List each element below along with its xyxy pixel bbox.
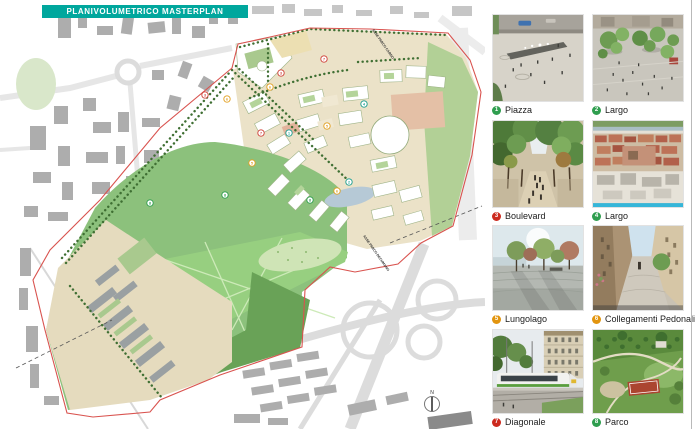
legend-label-8: Parco bbox=[605, 417, 629, 427]
masterplan-board: ASSE PARCO CARDO ASSE PARCO DECUMANO 367… bbox=[0, 0, 700, 429]
map-marker: 3 bbox=[278, 70, 284, 76]
legend-card-boulevard: 3 Boulevard bbox=[492, 120, 584, 221]
map-marker: 8 bbox=[222, 192, 228, 198]
svg-text:5: 5 bbox=[251, 161, 253, 165]
photo-diagonale bbox=[492, 329, 584, 414]
legend-card-lungolago: 5 Lungolago bbox=[492, 225, 584, 324]
north-label: N bbox=[430, 390, 434, 396]
map-marker: 4 bbox=[361, 101, 367, 107]
photo-largo-2 bbox=[592, 14, 684, 102]
legend-card-largo-4: 4 Largo bbox=[592, 120, 684, 221]
legend-label-1: Piazza bbox=[505, 105, 532, 115]
legend-badge-8: 8 bbox=[592, 418, 601, 427]
svg-text:8: 8 bbox=[149, 201, 151, 205]
masterplan-map: ASSE PARCO CARDO ASSE PARCO DECUMANO 367… bbox=[0, 0, 485, 429]
legend-badge-6: 6 bbox=[592, 315, 601, 324]
svg-text:7: 7 bbox=[260, 131, 262, 135]
map-marker: 3 bbox=[202, 92, 208, 98]
legend-badge-2: 2 bbox=[592, 106, 601, 115]
svg-text:6: 6 bbox=[269, 85, 271, 89]
photo-piazza bbox=[492, 14, 584, 102]
svg-text:6: 6 bbox=[336, 189, 338, 193]
svg-text:3: 3 bbox=[204, 93, 206, 97]
svg-text:3: 3 bbox=[280, 71, 282, 75]
photo-lungolago bbox=[492, 225, 584, 311]
legend-badge-7: 7 bbox=[492, 418, 501, 427]
svg-text:7: 7 bbox=[323, 57, 325, 61]
legend-badge-4: 4 bbox=[592, 212, 601, 221]
map-marker: 8 bbox=[147, 200, 153, 206]
legend-card-largo-2: 2 Largo bbox=[592, 14, 684, 115]
photo-parco bbox=[592, 329, 684, 414]
legend-badge-5: 5 bbox=[492, 315, 501, 324]
map-marker: 1 bbox=[286, 130, 292, 136]
svg-text:4: 4 bbox=[363, 102, 365, 106]
map-marker: 5 bbox=[249, 160, 255, 166]
title-banner: PLANIVOLUMETRICO MASTERPLAN bbox=[42, 5, 248, 18]
legend-badge-1: 1 bbox=[492, 106, 501, 115]
svg-text:1: 1 bbox=[288, 131, 290, 135]
map-marker: 6 bbox=[334, 188, 340, 194]
map-marker: 7 bbox=[321, 56, 327, 62]
legend-label-7: Diagonale bbox=[505, 417, 546, 427]
legend-label-4: Largo bbox=[605, 211, 628, 221]
legend-label-6: Collegamenti Pedonali bbox=[605, 314, 695, 324]
map-area: ASSE PARCO CARDO ASSE PARCO DECUMANO 367… bbox=[0, 0, 485, 429]
north-parcel-circle bbox=[257, 61, 267, 71]
legend-label-5: Lungolago bbox=[505, 314, 547, 324]
legend-card-diagonale: 7 Diagonale bbox=[492, 329, 584, 427]
photo-collegamenti-pedonali bbox=[592, 225, 684, 311]
map-marker: 2 bbox=[346, 179, 352, 185]
svg-text:6: 6 bbox=[226, 97, 228, 101]
page-title: PLANIVOLUMETRICO MASTERPLAN bbox=[66, 7, 223, 16]
legend-panel: 1 Piazza bbox=[488, 0, 693, 429]
map-marker: 6 bbox=[224, 96, 230, 102]
legend-label-2: Largo bbox=[605, 105, 628, 115]
map-marker: 8 bbox=[307, 197, 313, 203]
svg-text:8: 8 bbox=[224, 193, 226, 197]
map-marker: 7 bbox=[258, 130, 264, 136]
legend-badge-3: 3 bbox=[492, 212, 501, 221]
roundabout bbox=[117, 61, 139, 83]
photo-boulevard bbox=[492, 120, 584, 208]
svg-text:8: 8 bbox=[309, 198, 311, 202]
legend-card-parco: 8 Parco bbox=[592, 329, 684, 427]
legend-card-collegamenti: 6 Collegamenti Pedonali bbox=[592, 225, 684, 324]
panel-divider bbox=[691, 0, 692, 429]
map-marker: 6 bbox=[267, 84, 273, 90]
map-marker: 5 bbox=[324, 123, 330, 129]
context-green bbox=[16, 58, 56, 110]
svg-text:2: 2 bbox=[348, 180, 350, 184]
circular-building bbox=[371, 116, 409, 154]
legend-label-3: Boulevard bbox=[505, 211, 546, 221]
photo-largo-4 bbox=[592, 120, 684, 208]
legend-card-piazza: 1 Piazza bbox=[492, 14, 584, 115]
svg-text:5: 5 bbox=[326, 124, 328, 128]
